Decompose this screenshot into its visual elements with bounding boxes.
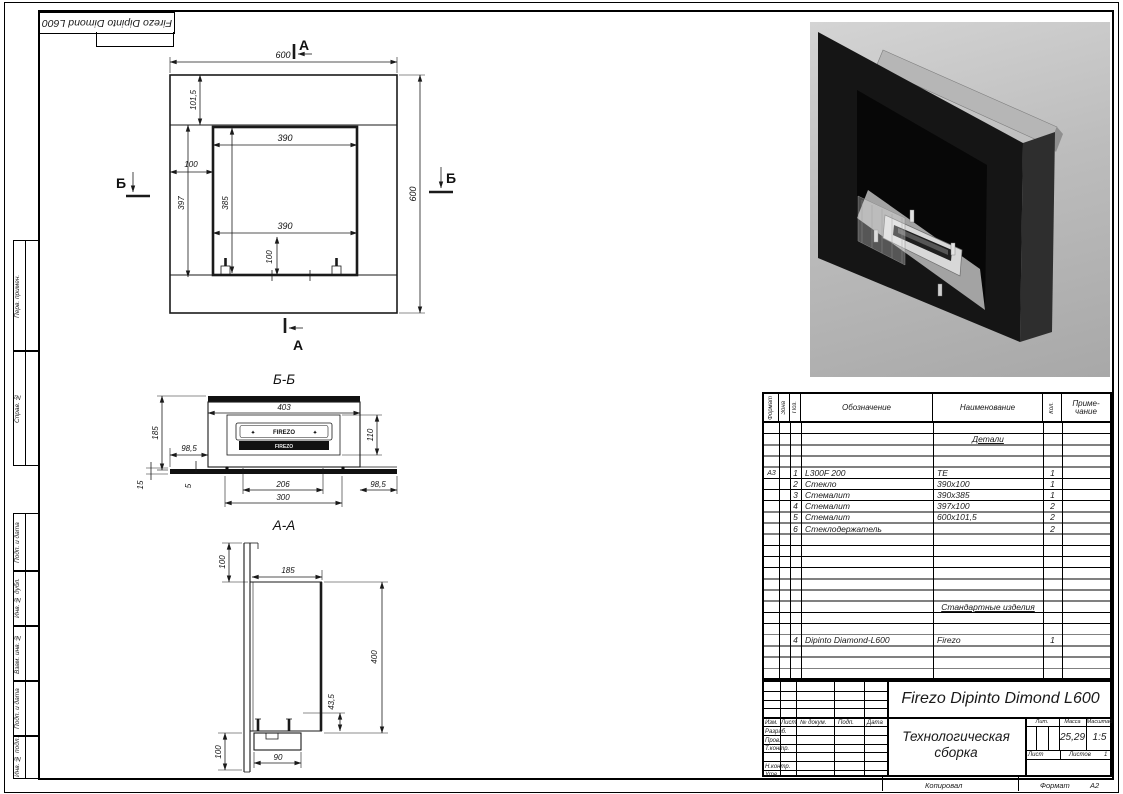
doc-type-line1: Технологическая <box>889 729 1023 745</box>
dim-397: 397 <box>177 196 186 210</box>
spec-row: 2 Стекло 390х100 1 <box>764 479 1110 490</box>
tb-data: Дата <box>867 719 883 727</box>
col-zona: Зона <box>781 401 787 415</box>
cell-kol: 1 <box>1043 479 1062 490</box>
cell-kol: 1 <box>1043 490 1062 501</box>
dim-100-bottom-aa: 100 <box>214 745 223 759</box>
burner-slot-logo: FIREZO <box>275 444 293 450</box>
dim-600-top: 600 <box>275 50 290 60</box>
tb-podp: Подп. <box>838 719 854 727</box>
section-bb-title: Б-Б <box>273 372 295 387</box>
front-view: 600 101,5 390 100 397 385 390 100 <box>116 37 456 353</box>
tb-masshtab: Масштаб <box>1086 719 1113 725</box>
doc-type: Технологическая сборка <box>889 729 1023 761</box>
dim-300: 300 <box>276 493 290 502</box>
dim-98-5-right: 98,5 <box>370 480 386 489</box>
cell-kol: 1 <box>1043 468 1062 479</box>
drawing-sheet: Перв. примен. Справ. № Подп. и дата Инв.… <box>0 0 1123 794</box>
spec-row: 4 Стемалит 397х100 2 <box>764 501 1110 512</box>
dim-390-bottom: 390 <box>277 221 292 231</box>
spec-row: 5 Стемалит 600х101,5 2 <box>764 512 1110 523</box>
cell-naimenovanie: ТЕ <box>933 468 1043 479</box>
cell-oboznachenie: Стеклодержатель <box>801 524 933 535</box>
burner-logo: FIREZO <box>273 430 295 436</box>
spec-row: 3 Стемалит 390х385 1 <box>764 490 1110 501</box>
tb-list: Лист <box>781 719 796 727</box>
cell-oboznachenie: Стекло <box>801 479 933 490</box>
cell-kol: 2 <box>1043 512 1062 523</box>
cell-naimenovanie: 600х101,5 <box>933 512 1043 523</box>
tb-list2: Лист <box>1028 751 1043 759</box>
dim-385: 385 <box>221 196 230 210</box>
dim-100-top-aa: 100 <box>218 555 227 569</box>
dim-101-5: 101,5 <box>189 89 198 110</box>
doc-name: Firezo Dipinto Dimond L600 <box>889 690 1112 708</box>
spec-section-details: Детали <box>933 434 1043 445</box>
format-label: Формат <box>1040 781 1070 790</box>
dim-400: 400 <box>370 650 379 664</box>
doc-type-line2: сборка <box>889 745 1023 761</box>
cell-naimenovanie <box>933 524 1043 535</box>
spec-row: 4 Dipinto Diamond-L600 Firezo 1 <box>764 635 1110 646</box>
section-marker-b-right: Б <box>446 170 456 186</box>
burner-knob-left-icon: ✦ <box>250 430 255 437</box>
spec-row: А3 1 L300F 200 ТЕ 1 <box>764 468 1110 479</box>
listov-value: 1 <box>1104 751 1107 759</box>
dim-100-bottom: 100 <box>265 250 274 264</box>
cell-poz: 5 <box>790 512 801 523</box>
cell-poz: 6 <box>790 524 801 535</box>
dim-90: 90 <box>274 753 283 762</box>
cell-poz: 4 <box>790 635 801 646</box>
kopiroval-label: Копировал <box>925 781 962 790</box>
cell-oboznachenie: L300F 200 <box>801 468 933 479</box>
tb-utv: Утв. <box>765 771 779 779</box>
section-marker-a-bottom: А <box>293 337 303 353</box>
dim-185-aa: 185 <box>281 566 295 575</box>
tb-listov: Листов <box>1069 751 1091 759</box>
col-naimenovanie: Наименование <box>960 404 1015 412</box>
dim-390-top: 390 <box>277 133 292 143</box>
cell-oboznachenie: Dipinto Diamond-L600 <box>801 635 933 646</box>
tb-n-kontr: Н.контр. <box>765 763 790 771</box>
dim-43-5: 43,5 <box>327 694 336 710</box>
format-value: А2 <box>1090 781 1099 790</box>
section-view-bb: Б-Б FIREZO ✦ ✦ FIREZO 403 185 98,5 <box>136 372 397 507</box>
tb-t-kontr: Т.контр. <box>765 745 789 753</box>
burner-knob-right-icon: ✦ <box>312 430 317 437</box>
tb-lit: Лит. <box>1025 719 1059 725</box>
tb-n-dokum: № докум. <box>800 719 826 727</box>
cell-kol: 1 <box>1043 635 1062 646</box>
spec-table-header: Формат Зона Поз. Обозначение Наименовани… <box>764 394 1110 423</box>
cell-oboznachenie: Стемалит <box>801 512 933 523</box>
col-format: Формат <box>768 396 774 420</box>
cell-poz: 2 <box>790 479 801 490</box>
spec-table-body: Детали А3 1 L300F 200 ТЕ 1 2 Стекло 390х… <box>764 423 1110 678</box>
cell-poz: 3 <box>790 490 801 501</box>
tb-razrab: Разраб. <box>765 728 787 736</box>
cell-naimenovanie: 397х100 <box>933 501 1043 512</box>
cell-oboznachenie: Стемалит <box>801 501 933 512</box>
dim-185-bb: 185 <box>151 426 160 440</box>
cell-kol: 2 <box>1043 501 1062 512</box>
cell-kol: 2 <box>1043 524 1062 535</box>
dim-206: 206 <box>275 480 290 489</box>
dim-403: 403 <box>277 403 291 412</box>
dim-100-left: 100 <box>184 160 198 169</box>
dim-98-5-left: 98,5 <box>181 444 197 453</box>
cell-naimenovanie: Firezo <box>933 635 1043 646</box>
spec-section-standard: Стандартные изделия <box>933 602 1043 613</box>
tb-prov: Пров. <box>765 737 781 745</box>
cell-naimenovanie: 390х100 <box>933 479 1043 490</box>
dim-5: 5 <box>184 483 193 488</box>
cell-oboznachenie: Стемалит <box>801 490 933 501</box>
massa-value: 25,29 <box>1059 732 1086 743</box>
dim-110: 110 <box>366 428 375 441</box>
tb-massa: Масса <box>1059 719 1086 725</box>
section-marker-b-left: Б <box>116 175 126 191</box>
masshtab-value: 1:5 <box>1086 732 1113 743</box>
title-block: Изм. Лист № докум. Подп. Дата Разраб. Пр… <box>762 680 1112 777</box>
cell-naimenovanie: 390х385 <box>933 490 1043 501</box>
cell-poz: 4 <box>790 501 801 512</box>
dim-600-right: 600 <box>408 186 418 201</box>
render-3d-art <box>810 22 1110 377</box>
spec-table: Формат Зона Поз. Обозначение Наименовани… <box>762 392 1112 680</box>
dim-15: 15 <box>136 480 145 489</box>
tb-izm: Изм. <box>765 719 778 727</box>
col-oboznachenie: Обозначение <box>842 404 891 412</box>
section-aa-title: А-А <box>272 518 296 533</box>
cell-format: А3 <box>764 468 779 479</box>
render-3d <box>810 22 1110 377</box>
section-view-aa: А-А 100 185 400 <box>214 518 388 772</box>
spec-row: 6 Стеклодержатель 2 <box>764 524 1110 535</box>
col-kol: Кол. <box>1049 402 1055 414</box>
col-poz: Поз. <box>792 401 798 413</box>
section-marker-a-top: А <box>299 37 309 53</box>
col-primechanie-2: чание <box>1075 408 1097 416</box>
cell-poz: 1 <box>790 468 801 479</box>
